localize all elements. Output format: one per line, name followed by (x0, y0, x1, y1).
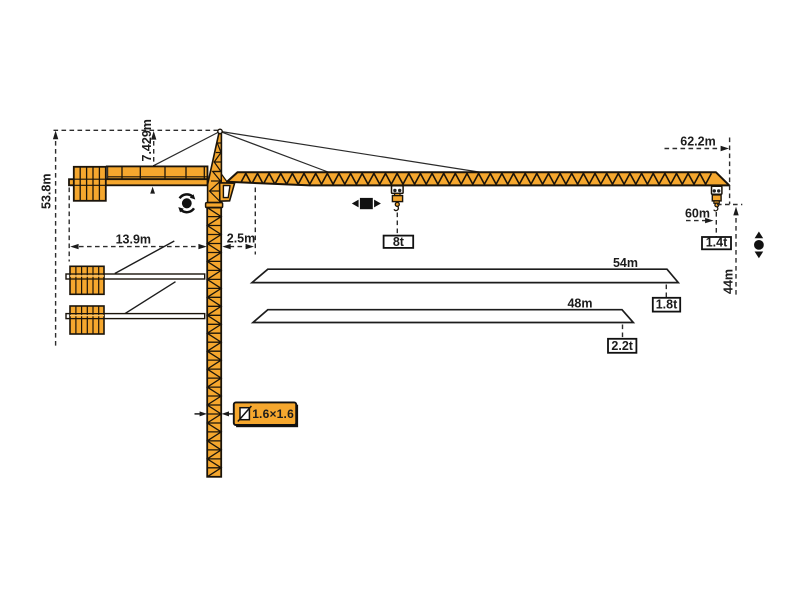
svg-text:8t: 8t (393, 235, 405, 249)
svg-text:13.9m: 13.9m (116, 233, 151, 247)
svg-text:1.4t: 1.4t (706, 236, 728, 250)
svg-text:54m: 54m (613, 256, 638, 270)
svg-text:48m: 48m (567, 297, 592, 311)
svg-text:7.429m: 7.429m (140, 119, 154, 161)
svg-text:53.8m: 53.8m (40, 174, 54, 209)
svg-text:2.2t: 2.2t (611, 339, 633, 353)
svg-text:1.8t: 1.8t (656, 298, 678, 312)
svg-text:1.6×1.6: 1.6×1.6 (252, 407, 294, 421)
svg-text:2.5m: 2.5m (227, 232, 256, 246)
svg-text:44m: 44m (722, 269, 736, 294)
svg-text:62.2m: 62.2m (680, 134, 715, 148)
